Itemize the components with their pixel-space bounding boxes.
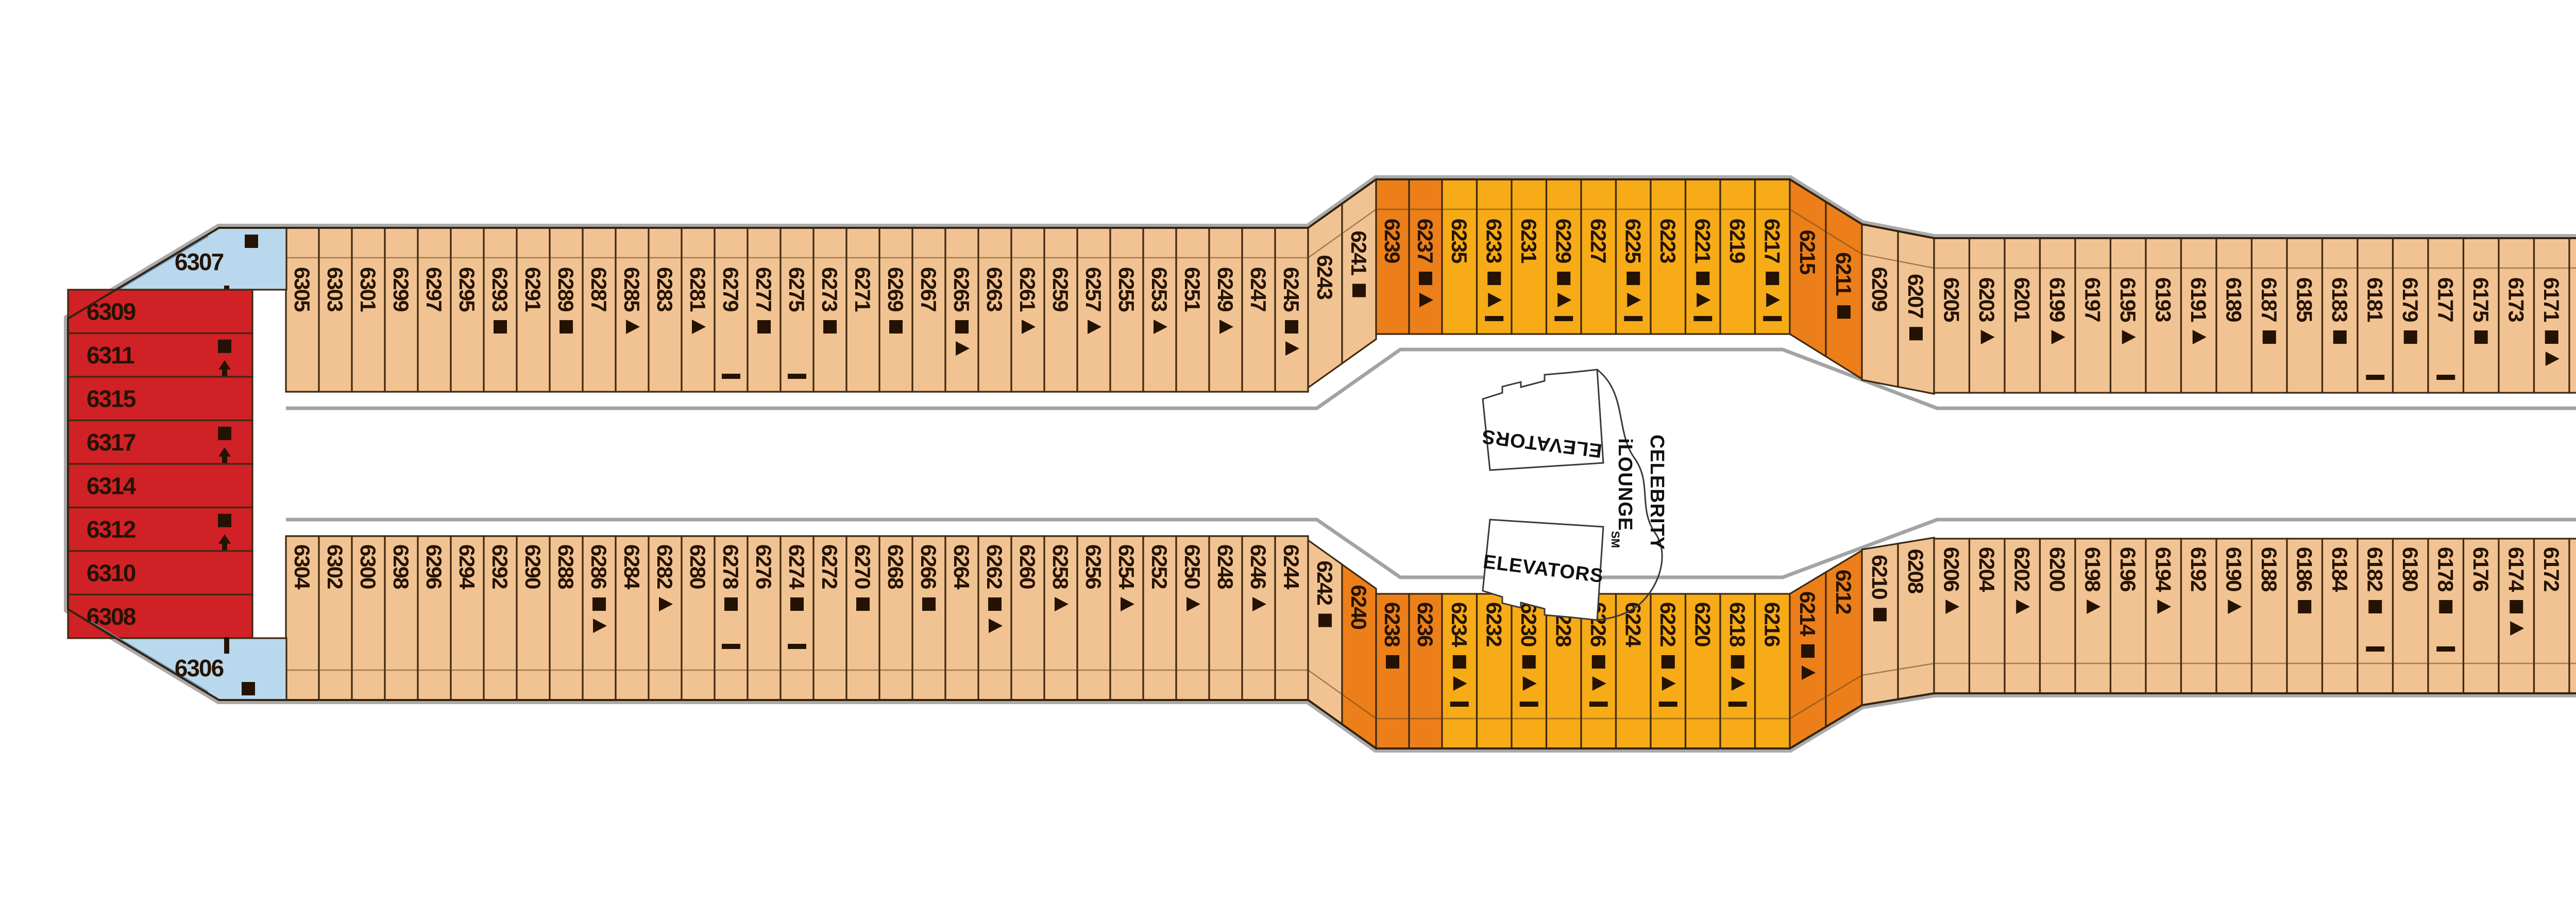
cabin-6215[interactable]: 6215 [1790, 179, 1826, 357]
cabin-number: 6234 [1447, 602, 1471, 647]
cabin-6200[interactable]: 6200 [2040, 539, 2076, 693]
cabin-number: 6245 [1279, 267, 1303, 312]
cabin-6224[interactable]: 6224 [1616, 594, 1651, 748]
cabin-number: 6239 [1380, 219, 1404, 263]
cabin-6227[interactable]: 6227 [1581, 179, 1616, 334]
cabin-6298[interactable]: 6298 [385, 536, 418, 700]
square-icon [724, 597, 738, 611]
cabin-number: 6174 [2504, 547, 2528, 592]
square-icon [560, 320, 573, 334]
cabin-6301[interactable]: 6301 [352, 228, 385, 392]
cabin-6260[interactable]: 6260 [1011, 536, 1044, 700]
cabin-number: 6180 [2398, 547, 2422, 591]
cabin-number: 6216 [1760, 602, 1784, 646]
cabin-6256[interactable]: 6256 [1077, 536, 1110, 700]
cabin-number: 6290 [521, 544, 545, 589]
cabin-number: 6293 [488, 267, 512, 311]
cabin-number: 6246 [1246, 544, 1270, 589]
cabin-number: 6238 [1380, 602, 1404, 647]
square-icon [592, 597, 606, 611]
connector-icon [2366, 646, 2384, 652]
cabin-6295[interactable]: 6295 [451, 228, 484, 392]
square-icon [2475, 330, 2488, 344]
square-icon [218, 340, 231, 353]
cabin-6243[interactable]: 6243 [1308, 204, 1342, 388]
cabin-6280[interactable]: 6280 [682, 536, 715, 700]
cabin-6183[interactable]: 6183 [2323, 238, 2358, 393]
cabin-6283[interactable]: 6283 [649, 228, 682, 392]
cabin-number: 6191 [2187, 277, 2211, 322]
cabin-number: 6192 [2187, 547, 2211, 591]
cabin-6270[interactable]: 6270 [846, 536, 879, 700]
cabin-6222[interactable]: 6222 [1651, 594, 1686, 748]
cabin-number: 6261 [1015, 267, 1040, 312]
cabin-number: 6177 [2433, 277, 2458, 322]
cabin-6187[interactable]: 6187 [2252, 238, 2287, 393]
cabin-6297[interactable]: 6297 [418, 228, 451, 392]
square-icon [2263, 330, 2276, 344]
square-icon [2439, 600, 2452, 613]
cabin-number: 6244 [1279, 544, 1303, 590]
cabin-number: 6272 [818, 544, 842, 589]
cabin-6191[interactable]: 6191 [2181, 238, 2217, 393]
cabin-number: 6210 [1868, 555, 1892, 599]
cabin-6268[interactable]: 6268 [879, 536, 912, 700]
cabin-number: 6200 [2045, 547, 2070, 591]
cabin-6255[interactable]: 6255 [1110, 228, 1143, 392]
cabin-number: 6285 [620, 267, 644, 312]
cabin-6176[interactable]: 6176 [2464, 539, 2499, 693]
cabin-6254[interactable]: 6254 [1110, 536, 1143, 700]
cabin-number: 6254 [1114, 544, 1139, 590]
cabin-6265[interactable]: 6265 [945, 228, 978, 392]
cabin-6274[interactable]: 6274 [781, 536, 814, 700]
square-icon [1419, 272, 1432, 285]
cabin-6245[interactable]: 6245 [1275, 228, 1308, 392]
cabin-6282[interactable]: 6282 [649, 536, 682, 700]
cabin-number: 6295 [455, 267, 479, 312]
cabin-number: 6274 [785, 544, 809, 590]
cabin-number: 6194 [2151, 547, 2175, 592]
square-icon [218, 514, 231, 527]
cabin-6239[interactable]: 6239 [1376, 179, 1409, 334]
square-icon [218, 427, 231, 440]
cabin-6170[interactable]: 6170 [2569, 539, 2576, 693]
cabin-6266[interactable]: 6266 [912, 536, 945, 700]
cabin-6296[interactable]: 6296 [418, 536, 451, 700]
cabin-6289[interactable]: 6289 [550, 228, 583, 392]
connector-icon [722, 644, 740, 649]
cabin-6250[interactable]: 6250 [1176, 536, 1209, 700]
cabin-number: 6287 [587, 267, 611, 311]
cabin-6235[interactable]: 6235 [1442, 179, 1477, 334]
square-icon [1453, 655, 1466, 669]
cabin-6210[interactable]: 6210 [1862, 544, 1898, 706]
cabin-6305[interactable]: 6305 [286, 228, 319, 392]
square-icon [757, 320, 771, 334]
cabin-6292[interactable]: 6292 [484, 536, 517, 700]
cabin-6223[interactable]: 6223 [1651, 179, 1686, 334]
cabin-6309[interactable]: 6309 [68, 290, 252, 334]
cabin-6186[interactable]: 6186 [2287, 539, 2323, 693]
cabin-number: 6281 [686, 267, 710, 312]
square-icon [1285, 320, 1298, 334]
cabin-number: 6266 [917, 544, 941, 589]
cabin-6233[interactable]: 6233 [1477, 179, 1512, 334]
cabin-6277[interactable]: 6277 [748, 228, 781, 392]
cabin-6291[interactable]: 6291 [517, 228, 550, 392]
cabin-number: 6260 [1015, 544, 1040, 589]
cabin-6247[interactable]: 6247 [1242, 228, 1275, 392]
square-icon [1909, 327, 1923, 340]
connector-icon [1693, 316, 1712, 321]
square-icon [2368, 600, 2382, 613]
cabin-6275[interactable]: 6275 [781, 228, 814, 392]
cabin-number: 6256 [1081, 544, 1106, 589]
square-icon [1386, 655, 1399, 669]
cabin-number: 6225 [1621, 219, 1645, 263]
cabin-number: 6269 [884, 267, 908, 311]
cabin-6312[interactable]: 6312 [68, 508, 252, 552]
cabin-6304[interactable]: 6304 [286, 536, 319, 700]
cabin-number: 6286 [587, 544, 611, 589]
cabin-number: 6304 [290, 544, 314, 590]
cabin-number: 6257 [1081, 267, 1106, 311]
cabin-6181[interactable]: 6181 [2358, 238, 2393, 393]
cabin-6169[interactable]: 6169 [2569, 238, 2576, 393]
cabin-6193[interactable]: 6193 [2146, 238, 2181, 393]
cabin-number: 6243 [1313, 255, 1337, 299]
cabin-number: 6172 [2539, 547, 2564, 591]
square-icon [1662, 655, 1675, 669]
cabin-6188[interactable]: 6188 [2252, 539, 2287, 693]
cabin-number: 6183 [2328, 277, 2352, 322]
cabin-6178[interactable]: 6178 [2428, 539, 2464, 693]
square-icon [1873, 608, 1887, 621]
cabin-number: 6209 [1868, 267, 1892, 311]
cabin-number: 6235 [1447, 219, 1471, 263]
connector-icon [722, 374, 740, 379]
cabin-6179[interactable]: 6179 [2393, 238, 2429, 393]
cabin-number: 6241 [1347, 231, 1371, 276]
cabin-number: 6175 [2469, 277, 2493, 322]
cabin-6195[interactable]: 6195 [2111, 238, 2146, 393]
cabin-6182[interactable]: 6182 [2358, 539, 2393, 693]
cabin-6288[interactable]: 6288 [550, 536, 583, 700]
cabin-6281[interactable]: 6281 [682, 228, 715, 392]
cabin-6216[interactable]: 6216 [1755, 594, 1790, 748]
cabin-6206[interactable]: 6206 [1934, 539, 1970, 693]
cabin-number: 6250 [1180, 544, 1205, 589]
cabin-6271[interactable]: 6271 [846, 228, 879, 392]
cabin-number: 6171 [2539, 277, 2564, 322]
cabin-6261[interactable]: 6261 [1011, 228, 1044, 392]
cabin-6236[interactable]: 6236 [1409, 594, 1442, 748]
cabin-6217[interactable]: 6217 [1755, 179, 1790, 334]
cabin-6185[interactable]: 6185 [2287, 238, 2323, 393]
cabin-6204[interactable]: 6204 [1970, 539, 2005, 693]
cabin-number: 6263 [982, 267, 1007, 311]
cabin-6284[interactable]: 6284 [616, 536, 649, 700]
square-icon [1837, 305, 1851, 319]
cabin-6263[interactable]: 6263 [978, 228, 1011, 392]
cabin-6249[interactable]: 6249 [1209, 228, 1242, 392]
square-icon [2545, 330, 2558, 344]
cabin-number: 6299 [389, 267, 413, 311]
cabin-number: 6262 [982, 544, 1007, 589]
cabin-6299[interactable]: 6299 [385, 228, 418, 392]
cabin-number: 6264 [950, 544, 974, 590]
cabin-6199[interactable]: 6199 [2040, 238, 2076, 393]
cabin-6262[interactable]: 6262 [978, 536, 1011, 700]
cabin-number: 6311 [87, 342, 134, 369]
cabin-6234[interactable]: 6234 [1442, 594, 1477, 748]
cabin-6180[interactable]: 6180 [2393, 539, 2429, 693]
cabin-6311[interactable]: 6311 [68, 334, 252, 378]
cabin-6232[interactable]: 6232 [1477, 594, 1512, 748]
cabin-number: 6185 [2292, 277, 2316, 322]
cabin-6272[interactable]: 6272 [814, 536, 846, 700]
cabin-number: 6280 [686, 544, 710, 589]
cabin-number: 6276 [752, 544, 776, 589]
cabin-6258[interactable]: 6258 [1044, 536, 1077, 700]
cabin-6194[interactable]: 6194 [2146, 539, 2181, 693]
cabin-number: 6207 [1904, 274, 1928, 318]
cabin-6286[interactable]: 6286 [583, 536, 616, 700]
cabin-6246[interactable]: 6246 [1242, 536, 1275, 700]
cabin-number: 6253 [1147, 267, 1172, 311]
cabin-number: 6258 [1048, 544, 1073, 589]
square-icon [988, 597, 1002, 611]
connector-icon [1589, 702, 1608, 707]
cabin-number: 6182 [2363, 547, 2387, 591]
cabin-6244[interactable]: 6244 [1275, 536, 1308, 700]
cabin-6310[interactable]: 6310 [68, 551, 252, 595]
cabin-6264[interactable]: 6264 [945, 536, 978, 700]
cabin-number: 6312 [87, 516, 135, 543]
square-icon [2333, 330, 2347, 344]
cabin-6300[interactable]: 6300 [352, 536, 385, 700]
cabin-number: 6189 [2222, 277, 2246, 322]
cabin-number: 6221 [1690, 219, 1715, 263]
cabin-number: 6190 [2222, 547, 2246, 591]
cabin-6177[interactable]: 6177 [2428, 238, 2464, 393]
cabin-6238[interactable]: 6238 [1376, 594, 1409, 748]
cabin-number: 6215 [1795, 230, 1820, 275]
cabin-6229[interactable]: 6229 [1547, 179, 1582, 334]
cabin-6211[interactable]: 6211 [1826, 202, 1862, 379]
cabin-6202[interactable]: 6202 [2005, 539, 2040, 693]
cabin-6218[interactable]: 6218 [1720, 594, 1755, 748]
cabin-6308[interactable]: 6308 [68, 595, 252, 639]
cabin-6173[interactable]: 6173 [2499, 238, 2534, 393]
cabin-6273[interactable]: 6273 [814, 228, 846, 392]
cabin-6302[interactable]: 6302 [319, 536, 352, 700]
cabin-number: 6271 [851, 267, 875, 312]
square-icon [1731, 655, 1744, 669]
square-icon [1522, 655, 1536, 669]
cabin-number: 6291 [521, 267, 545, 312]
cabin-6209[interactable]: 6209 [1862, 224, 1898, 387]
cabin-number: 6176 [2469, 547, 2493, 591]
cabin-6257[interactable]: 6257 [1077, 228, 1110, 392]
cabin-6203[interactable]: 6203 [1970, 238, 2005, 393]
cabin-number: 6289 [554, 267, 578, 311]
cabin-6294[interactable]: 6294 [451, 536, 484, 700]
cabin-6231[interactable]: 6231 [1512, 179, 1547, 334]
cabin-number: 6233 [1482, 219, 1506, 263]
cabin-number: 6218 [1725, 602, 1750, 647]
cabin-6267[interactable]: 6267 [912, 228, 945, 392]
cabin-number: 6240 [1347, 585, 1371, 629]
cabin-6214[interactable]: 6214 [1790, 572, 1826, 748]
square-icon [2404, 330, 2417, 344]
connector-icon [1554, 316, 1573, 321]
cabin-6269[interactable]: 6269 [879, 228, 912, 392]
cabin-6253[interactable]: 6253 [1143, 228, 1176, 392]
cabin-number: 6251 [1180, 267, 1205, 312]
cabin-number: 6265 [950, 267, 974, 312]
cabin-6225[interactable]: 6225 [1616, 179, 1651, 334]
cabin-6212[interactable]: 6212 [1826, 551, 1862, 727]
cabin-6290[interactable]: 6290 [517, 536, 550, 700]
cabin-number: 6179 [2398, 277, 2422, 322]
cabin-6221[interactable]: 6221 [1686, 179, 1721, 334]
cabin-6205[interactable]: 6205 [1934, 238, 1970, 393]
square-icon [823, 320, 837, 334]
connector-icon [2436, 646, 2455, 652]
cabin-6201[interactable]: 6201 [2005, 238, 2040, 393]
cabin-6278[interactable]: 6278 [715, 536, 748, 700]
cabin-number: 6236 [1413, 602, 1437, 646]
cabin-6175[interactable]: 6175 [2464, 238, 2499, 393]
cabin-number: 6232 [1482, 602, 1506, 646]
cabin-6197[interactable]: 6197 [2075, 238, 2111, 393]
cabin-6285[interactable]: 6285 [616, 228, 649, 392]
cabin-6192[interactable]: 6192 [2181, 539, 2217, 693]
cabin-6252[interactable]: 6252 [1143, 536, 1176, 700]
cabin-number: 6223 [1656, 219, 1680, 263]
connector-icon [2436, 375, 2455, 380]
connector-icon [1728, 702, 1747, 707]
cabin-number: 6196 [2116, 547, 2140, 591]
cabin-number: 6229 [1551, 219, 1575, 263]
cabin-number: 6242 [1313, 561, 1337, 605]
cabin-number: 6294 [455, 544, 479, 590]
cabin-6314[interactable]: 6314 [68, 464, 252, 508]
cabin-number: 6283 [653, 267, 677, 311]
cabin-number: 6288 [554, 544, 578, 589]
cabin-number: 6249 [1213, 267, 1238, 311]
cabin-6198[interactable]: 6198 [2075, 539, 2111, 693]
cabin-6241[interactable]: 6241 [1342, 179, 1376, 363]
square-icon [494, 320, 507, 334]
cabin-6207[interactable]: 6207 [1898, 231, 1934, 394]
cabin-6220[interactable]: 6220 [1686, 594, 1721, 748]
cabin-6184[interactable]: 6184 [2323, 539, 2358, 693]
cabin-number: 6275 [785, 267, 809, 312]
square-icon [242, 682, 255, 695]
cabin-number: 6227 [1586, 219, 1611, 263]
cabin-number: 6211 [1832, 252, 1856, 296]
cabin-number: 6222 [1656, 602, 1680, 646]
cabin-number: 6252 [1147, 544, 1172, 589]
cabin-number: 6259 [1048, 267, 1073, 311]
cabin-number: 6208 [1904, 549, 1928, 594]
square-icon [1318, 614, 1332, 627]
cabin-6237[interactable]: 6237 [1409, 179, 1442, 334]
square-icon [856, 597, 870, 611]
cabin-6242[interactable]: 6242 [1308, 540, 1342, 724]
cabin-number: 6301 [356, 267, 380, 312]
cabin-6240[interactable]: 6240 [1342, 564, 1376, 748]
celebrity-label: CELEBRITY [1646, 435, 1668, 550]
cabin-number: 6231 [1517, 219, 1541, 263]
cabin-6174[interactable]: 6174 [2499, 539, 2534, 693]
cabin-6248[interactable]: 6248 [1209, 536, 1242, 700]
cabin-6251[interactable]: 6251 [1176, 228, 1209, 392]
cabin-6219[interactable]: 6219 [1720, 179, 1755, 334]
cabin-number: 6317 [87, 429, 135, 456]
cabin-number: 6202 [2010, 547, 2034, 591]
cabin-6190[interactable]: 6190 [2216, 539, 2252, 693]
square-icon [2298, 600, 2311, 613]
cabin-number: 6181 [2363, 277, 2387, 322]
connector-icon [1485, 316, 1503, 321]
cabin-6189[interactable]: 6189 [2216, 238, 2252, 393]
connector-icon [788, 644, 806, 649]
cabin-number: 6315 [87, 385, 136, 412]
cabin-number: 6300 [356, 544, 380, 589]
cabin-number: 6195 [2116, 277, 2140, 322]
cabin-6317[interactable]: 6317 [68, 421, 252, 465]
cabin-number: 6268 [884, 544, 908, 589]
cabin-number: 6199 [2045, 277, 2070, 322]
cabin-6276[interactable]: 6276 [748, 536, 781, 700]
cabin-6259[interactable]: 6259 [1044, 228, 1077, 392]
cabin-6172[interactable]: 6172 [2534, 539, 2570, 693]
cabin-6171[interactable]: 6171 [2534, 238, 2570, 393]
cabin-6230[interactable]: 6230 [1512, 594, 1547, 748]
cabin-number: 6188 [2257, 547, 2281, 592]
cabin-6287[interactable]: 6287 [583, 228, 616, 392]
connector-icon [1624, 316, 1642, 321]
cabin-number: 6302 [323, 544, 347, 589]
cabin-6279[interactable]: 6279 [715, 228, 748, 392]
square-icon [1626, 272, 1640, 285]
cabin-6303[interactable]: 6303 [319, 228, 352, 392]
cabin-number: 6219 [1725, 219, 1750, 263]
connector-icon [1659, 702, 1677, 707]
cabin-number: 6220 [1690, 602, 1715, 646]
cabin-number: 6186 [2292, 547, 2316, 591]
cabin-number: 6173 [2504, 277, 2528, 322]
cabin-number: 6198 [2080, 547, 2105, 592]
cabin-6208[interactable]: 6208 [1898, 538, 1934, 700]
square-icon [1766, 272, 1779, 285]
cabin-number: 6248 [1213, 544, 1238, 589]
cabin-6315[interactable]: 6315 [68, 377, 252, 421]
cabin-number: 6270 [851, 544, 875, 589]
cabin-number: 6284 [620, 544, 644, 590]
cabin-6293[interactable]: 6293 [484, 228, 517, 392]
cabin-number: 6193 [2151, 277, 2175, 322]
connector-icon [2366, 375, 2384, 380]
cabin-6196[interactable]: 6196 [2111, 539, 2146, 693]
connector-icon [788, 374, 806, 379]
cabin-number: 6298 [389, 544, 413, 589]
cabin-number: 6212 [1832, 570, 1856, 614]
